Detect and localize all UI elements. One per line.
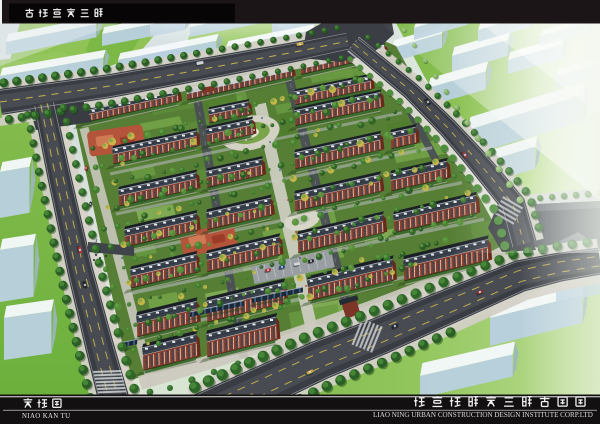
svg-text:NIAO KAN TU: NIAO KAN TU <box>22 413 70 420</box>
svg-text:LIAO NING URBAN CONSTRUCTION D: LIAO NING URBAN CONSTRUCTION DESIGN INST… <box>373 411 593 419</box>
